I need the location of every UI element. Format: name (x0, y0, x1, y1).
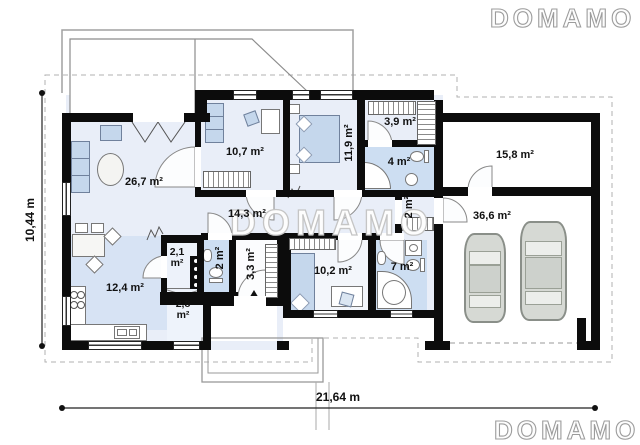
room-label-15-8: 15,8 m² (496, 149, 534, 161)
dimension-lines (0, 0, 640, 445)
room-label-corridor-2: 2 m² (403, 196, 415, 219)
room-label-12-4: 12,4 m² (106, 282, 144, 294)
room-label-7: 7 m² (391, 261, 414, 273)
room-label-living: 26,7 m² (125, 176, 163, 188)
room-label-11-9: 11,9 m² (343, 124, 355, 161)
dimension-dot (39, 90, 45, 96)
room-label-wc-2: 2 m² (214, 247, 226, 270)
room-label-10-2: 10,2 m² (314, 265, 352, 277)
dimension-dot (59, 405, 65, 411)
width-dimension-label: 21,64 m (316, 390, 360, 404)
dimension-dot (592, 405, 598, 411)
room-label-36-6: 36,6 m² (473, 210, 511, 222)
room-label-2-8: 2,8 m² (170, 299, 197, 321)
room-label-14-3: 14,3 m² (228, 208, 266, 220)
room-label-2-1: 2,1 m² (164, 247, 191, 269)
room-label-10-7: 10,7 m² (226, 146, 264, 158)
height-dimension-label: 10,44 m (23, 198, 37, 242)
dimension-dot (39, 343, 45, 349)
room-label-4: 4 m² (388, 156, 411, 168)
room-label-3-3: 3,3 m² (245, 248, 257, 280)
floor-plan: DOMAMO DOMAMO DOMAMO 26,7 m² 10,7 m² 11,… (0, 0, 640, 445)
room-label-3-9: 3,9 m² (384, 116, 416, 128)
